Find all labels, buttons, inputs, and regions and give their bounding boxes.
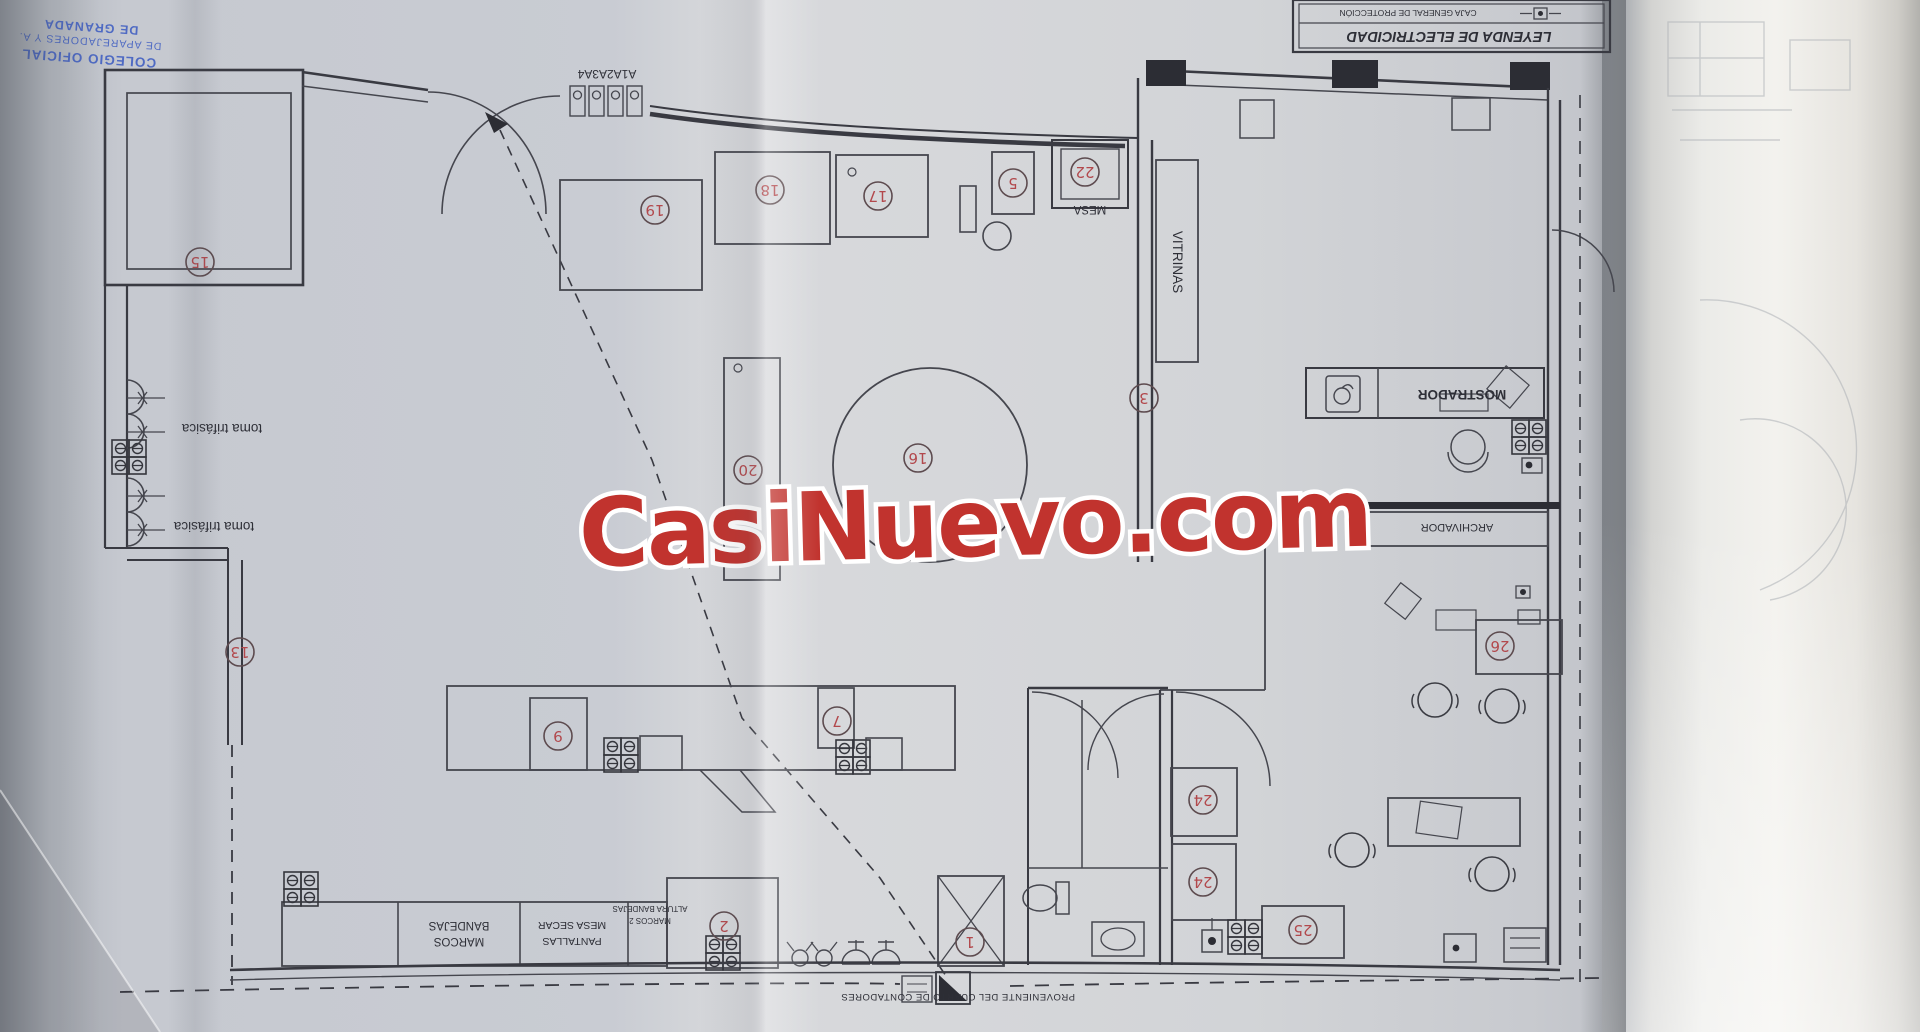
svg-text:24: 24 — [1193, 791, 1212, 809]
svg-text:7: 7 — [832, 712, 842, 730]
svg-text:24: 24 — [1193, 873, 1212, 891]
label-mostrador: MOSTRADOR — [1418, 387, 1507, 402]
watermark-text: CasiNuevo.com — [577, 459, 1372, 590]
svg-text:16: 16 — [908, 449, 927, 467]
floor-plan-photo-svg: A1A2A3A4 MESA VITRINAS MOSTRADOR ARCHIVA… — [0, 0, 1920, 1032]
label-vitrinas: VITRINAS — [1170, 231, 1185, 293]
label-bandejas: BANDEJAS — [428, 919, 489, 931]
socket-grid-icon — [1228, 920, 1262, 954]
socket-grid-icon — [112, 440, 146, 474]
svg-text:1: 1 — [965, 933, 975, 951]
svg-text:19: 19 — [645, 201, 664, 219]
socket-grid-icon — [836, 740, 870, 774]
svg-text:22: 22 — [1075, 163, 1094, 181]
label-marcos: MARCOS — [433, 935, 484, 947]
svg-text:25: 25 — [1293, 921, 1312, 939]
svg-text:17: 17 — [868, 187, 887, 205]
svg-text:5: 5 — [1008, 174, 1018, 192]
socket-grid-icon — [1512, 420, 1546, 454]
label-altura-bandejas: ALTURA BANDEJAS — [613, 904, 688, 913]
label-mesa-secar: MESA SECAR — [537, 919, 606, 931]
svg-text:9: 9 — [553, 727, 563, 745]
label-mesa: MESA — [1073, 203, 1106, 215]
rolled-plan-paper — [1580, 0, 1920, 1032]
svg-text:3: 3 — [1139, 389, 1149, 407]
socket-grid-icon — [604, 738, 638, 772]
label-panel: A1A2A3A4 — [577, 67, 636, 81]
photo-of-floor-plan: A1A2A3A4 MESA VITRINAS MOSTRADOR ARCHIVA… — [0, 0, 1920, 1032]
svg-text:26: 26 — [1490, 637, 1509, 655]
socket-grid-icon — [284, 872, 318, 906]
label-marcos-2: MARCOS 2 — [629, 916, 671, 925]
label-proveniente: PROVENIENTE DEL CUARTO DE CONTADORES — [841, 991, 1075, 1002]
legend-row-caja-general: CAJA GENERAL DE PROTECCIÓN — [1339, 8, 1476, 18]
svg-text:13: 13 — [230, 643, 249, 661]
legend-title: LEYENDA DE ELECTRICIDAD — [1346, 28, 1551, 44]
label-pantallas: PANTALLAS — [542, 935, 601, 947]
label-archivador: ARCHIVADOR — [1421, 521, 1494, 533]
